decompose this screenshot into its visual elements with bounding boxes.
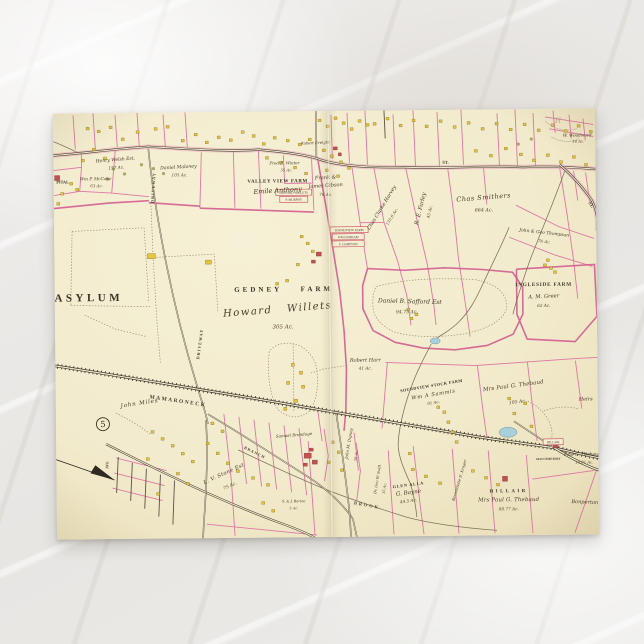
map-postcard[interactable]: HOWARD WILLETSP. MURPHYSOUNDVIEW FARMWM … [53,108,599,539]
map-svg: HOWARD WILLETSP. MURPHYSOUNDVIEW FARMWM … [53,108,599,539]
paper-vignette [53,108,599,539]
product-photo: { "scene": { "description": "vintage atl… [0,0,644,644]
